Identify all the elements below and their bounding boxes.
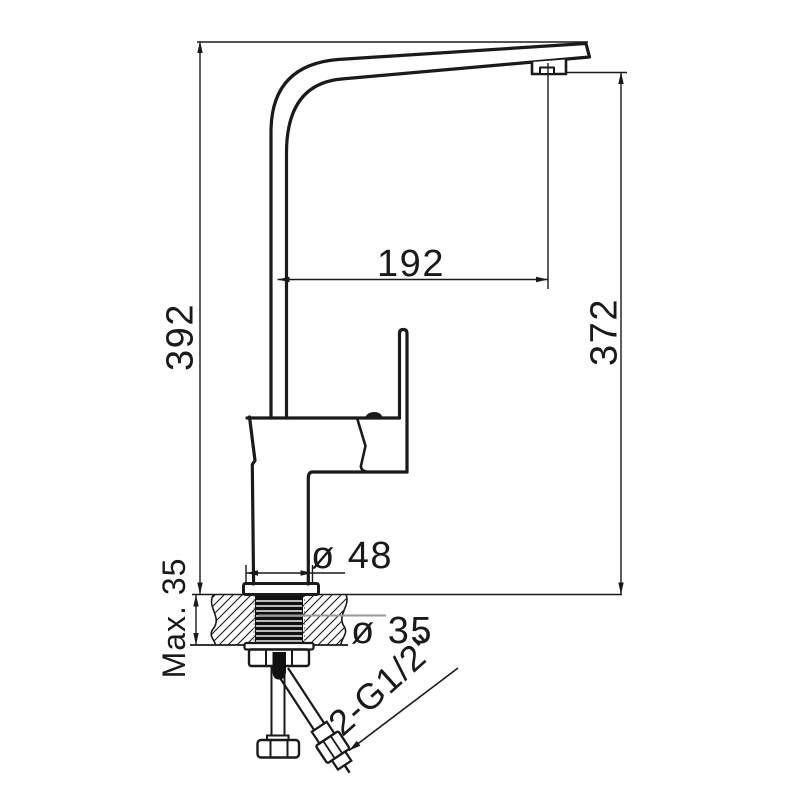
shank-thread-body — [255, 596, 303, 648]
body-left-edge — [250, 417, 256, 584]
dim-overall-height — [197, 41, 588, 595]
arrow-down — [193, 633, 198, 645]
arrow-down — [618, 583, 623, 595]
technical-drawing-canvas: 192 392 372 ø 48 Max. 35 ø 35 2-G1/2" — [0, 0, 800, 800]
aerator-outlet — [540, 68, 554, 75]
faucet-dimension-drawing: 192 392 372 ø 48 Max. 35 ø 35 2-G1/2" — [0, 0, 800, 800]
handle-grip — [400, 330, 408, 473]
label-deck-thickness: Max. 35 — [156, 558, 192, 679]
arrow-up — [193, 595, 198, 607]
fixing-stud — [273, 652, 287, 680]
handle-pivot-split-line — [358, 420, 367, 472]
dimension-labels: 192 392 372 ø 48 Max. 35 ø 35 2-G1/2" — [156, 243, 625, 743]
arrow-up — [618, 72, 623, 84]
faucet — [244, 44, 590, 595]
hatch-left — [211, 595, 255, 646]
spout — [271, 44, 590, 419]
label-spout-reach: 192 — [377, 243, 445, 285]
label-outlet-height: 372 — [583, 298, 625, 366]
arrow-up — [197, 41, 202, 53]
arrow-down — [197, 583, 202, 595]
label-overall-height: 392 — [159, 303, 201, 371]
body-top-bump — [365, 412, 383, 418]
connector-tip-tick — [345, 765, 350, 773]
hatch-right — [303, 595, 348, 646]
bottom-nut — [258, 740, 300, 758]
dim-deck-thickness — [193, 595, 198, 646]
threaded-shank — [254, 595, 305, 648]
label-base-diameter: ø 48 — [311, 535, 393, 577]
arrow-right — [536, 277, 548, 282]
